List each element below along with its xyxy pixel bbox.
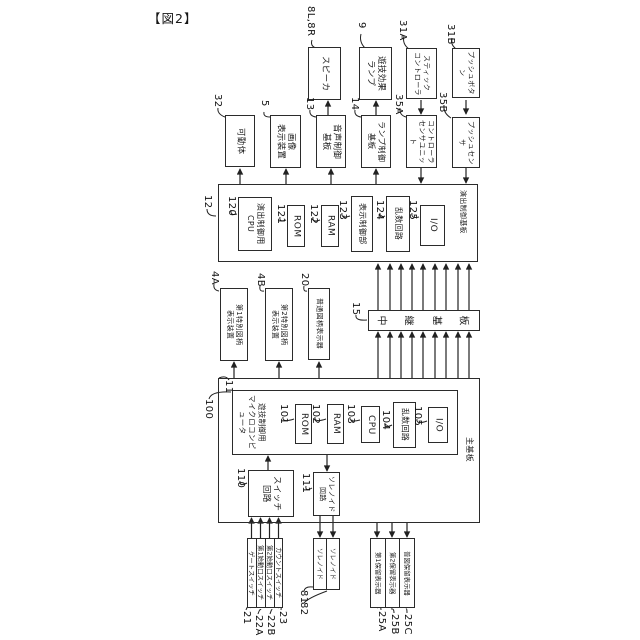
ref-movable-body: 32 xyxy=(212,94,223,108)
ref-game-effect-lamp: 9 xyxy=(356,22,367,29)
ref-main-io: 105 xyxy=(412,406,423,426)
main-board-name: 主基板 xyxy=(464,433,474,465)
ref-main-rom: 101 xyxy=(278,404,289,424)
ref-special-display-2: 4B xyxy=(255,273,266,287)
ref-stick-controller: 31A xyxy=(397,20,408,41)
ref-push-sensor: 35B xyxy=(437,92,448,113)
ref-start1-switch: 22A xyxy=(253,615,264,636)
box-main-ram: RAM xyxy=(327,404,344,444)
ref-controller-sensor-unit: 35A xyxy=(393,94,404,115)
box-solenoid-81: ソレノイド xyxy=(314,539,326,589)
patent-figure-canvas: 【図2】 演出制御基板 中 継 基 板 主基板 遊技制御用 マイクロコンピュータ… xyxy=(0,0,640,640)
box-lamp-control-board: ランプ制御 基板 xyxy=(361,115,391,168)
box-controller-sensor-unit: コントローラ センサユニット xyxy=(406,115,437,168)
leader-line xyxy=(270,610,272,615)
box-effect-rom: ROM xyxy=(287,205,305,247)
ref-normal-hold-display: 25C xyxy=(402,614,413,635)
box-solenoid-82: ソレノイド xyxy=(326,539,339,589)
ref-image-display: 5 xyxy=(259,100,270,107)
box-special-symbol-display-2: 第2特別図柄 表示装置 xyxy=(265,288,293,361)
leader-line xyxy=(258,610,261,615)
ref-solenoid-82: 82 xyxy=(298,602,309,616)
box-main-cpu: CPU xyxy=(361,406,380,443)
figure-label: 【図2】 xyxy=(148,8,197,27)
box-speaker: スピーカ xyxy=(308,47,341,100)
ref-microcomputer: 100 xyxy=(203,399,214,419)
box-normal-hold-display: 普図保留表示器 xyxy=(399,539,414,607)
box-start1-switch: 第1始動口スイッチ xyxy=(256,539,265,607)
game-control-microcomputer-label: 遊技制御用 マイクロコンピュータ xyxy=(237,392,266,453)
leader-line xyxy=(356,315,367,320)
leader-line xyxy=(406,609,407,613)
ref-count-switch: 23 xyxy=(277,611,288,625)
ref-effect-cpu: 120 xyxy=(226,196,237,216)
box-effect-io: I/O xyxy=(420,205,445,246)
ref-gate-switch: 21 xyxy=(241,611,252,625)
ref-switch-circuit: 110 xyxy=(235,468,246,488)
ref-sound-control-board: 13 xyxy=(304,97,315,111)
ref-speaker: 8L,8R xyxy=(305,6,316,36)
leader-line xyxy=(214,284,219,291)
leader-line xyxy=(207,209,216,216)
ref-main-cpu: 103 xyxy=(345,404,356,424)
ref-special-display-1: 4A xyxy=(209,271,220,285)
ref-effect-random-circuit: 124 xyxy=(374,200,385,220)
ref-effect-rom: 121 xyxy=(275,204,286,224)
box-solenoid-circuit: ソレノイド 回路 xyxy=(313,472,340,516)
box-normal-symbol-display: 普通図柄表示器 xyxy=(308,288,330,360)
ref-effect-board: 12 xyxy=(202,195,213,209)
leader-line xyxy=(391,609,394,613)
ref-main-ram: 102 xyxy=(310,404,321,424)
relay-board: 中 継 基 板 xyxy=(368,310,480,331)
box-hold-display-1: 第1保留表示器 xyxy=(371,539,385,607)
box-hold-display-2: 第2保留表示器 xyxy=(385,539,400,607)
box-push-button: プッシュボタン xyxy=(452,48,480,98)
ref-normal-symbol-display: 20 xyxy=(299,273,310,287)
relay-board-label: 中 継 基 板 xyxy=(369,313,479,328)
leader-line xyxy=(304,286,307,291)
box-start2-switch: 第2始動口スイッチ xyxy=(265,539,274,607)
ref-start2-switch: 22B xyxy=(265,615,276,636)
switch-group: ゲートスイッチ 第1始動口スイッチ 第2始動口スイッチ カウントスイッチ xyxy=(247,538,283,608)
ref-lamp-control-board: 14 xyxy=(349,97,360,111)
ref-effect-io: 125 xyxy=(407,200,418,220)
box-push-sensor: プッシュセンサ xyxy=(452,117,480,168)
box-special-symbol-display-1: 第1特別図柄 表示装置 xyxy=(220,288,248,361)
ref-relay-board: 15 xyxy=(350,302,361,316)
hold-display-group: 第1保留表示器 第2保留表示器 普図保留表示器 xyxy=(370,538,415,608)
box-effect-cpu: 演出制御用 CPU xyxy=(238,197,272,251)
ref-main-random-circuit: 104 xyxy=(380,410,391,430)
box-image-display: 画像 表示装置 xyxy=(270,115,301,168)
box-stick-controller: スティック コントローラ xyxy=(406,48,437,99)
box-gate-switch: ゲートスイッチ xyxy=(248,539,256,607)
ref-hold-display-1: 25A xyxy=(376,611,387,632)
box-sound-control-board: 音声制御 基板 xyxy=(316,115,346,168)
effect-control-board-name: 演出制御基板 xyxy=(458,188,467,236)
ref-display-control: 123 xyxy=(337,200,348,220)
box-switch-circuit: スイッチ 回路 xyxy=(248,470,294,517)
box-main-io: I/O xyxy=(428,407,448,443)
ref-effect-ram: 122 xyxy=(308,204,319,224)
ref-hold-display-2: 25B xyxy=(389,614,400,635)
ref-main-board: 11 xyxy=(223,380,234,394)
box-count-switch: カウントスイッチ xyxy=(274,539,283,607)
leader-line xyxy=(218,108,225,117)
ref-solenoid-circuit: 111 xyxy=(300,473,311,493)
box-game-effect-lamp: 遊技効果 ランプ xyxy=(359,47,392,100)
ref-push-button: 31B xyxy=(445,24,456,45)
box-movable-body: 可動体 xyxy=(225,115,255,167)
box-display-control: 表示制御部 xyxy=(351,196,373,252)
solenoid-group: ソレノイド ソレノイド xyxy=(313,538,340,590)
leader-line xyxy=(361,34,366,48)
